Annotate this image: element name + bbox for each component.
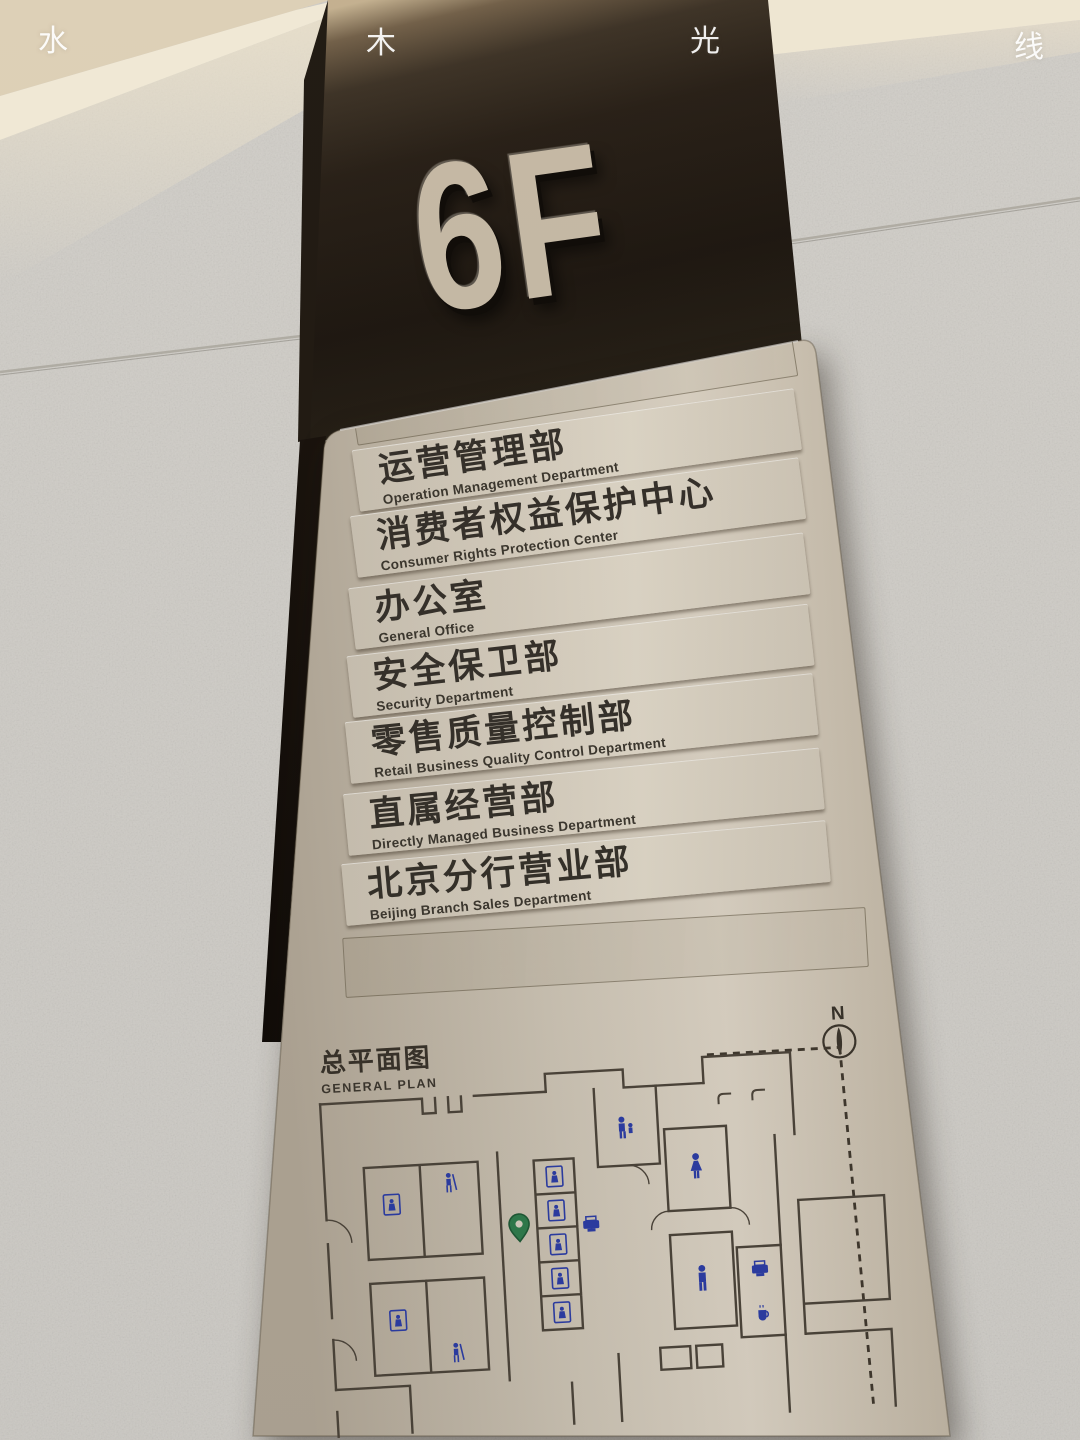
plan-title-zh: 总平面图: [319, 1042, 433, 1078]
plan-walls: [319, 1047, 896, 1438]
north-label: N: [830, 1003, 845, 1025]
elevator-icon: [390, 1310, 407, 1331]
directory-empty-slot-bottom: [342, 907, 869, 998]
coat-hook-icon: [718, 1090, 766, 1105]
restroom-male-icon: [698, 1265, 706, 1291]
elevator-icon: [554, 1302, 571, 1323]
printer-icon: [583, 1216, 600, 1232]
family-restroom-icon: [618, 1116, 633, 1139]
watermark-char: 光: [690, 16, 720, 60]
floor-plan: 总平面图 GENERAL PLAN N: [290, 997, 932, 1439]
floor-plan-section: 总平面图 GENERAL PLAN N: [290, 997, 932, 1439]
elevator-icon: [383, 1194, 400, 1215]
coffee-point-icon: [758, 1305, 769, 1321]
elevator-icon: [550, 1234, 567, 1255]
watermark-char: 木: [366, 18, 396, 62]
directory-panel: 运营管理部 Operation Management Department 消费…: [250, 250, 960, 1440]
elevator-icon: [552, 1268, 569, 1289]
watermark-char: 水: [38, 16, 68, 60]
service-person-icon: [446, 1173, 457, 1193]
plan-title-en: GENERAL PLAN: [321, 1076, 438, 1096]
restroom-female-icon: [690, 1153, 703, 1179]
location-pin-icon: [509, 1213, 531, 1242]
watermark-char: 线: [1014, 22, 1044, 66]
elevator-icon: [546, 1166, 563, 1187]
photo-scene: 6F 运营管理部 Operation Management Department: [0, 0, 1080, 1440]
printer-icon: [752, 1261, 769, 1277]
elevator-icon: [548, 1200, 565, 1221]
service-person-icon: [453, 1342, 464, 1362]
